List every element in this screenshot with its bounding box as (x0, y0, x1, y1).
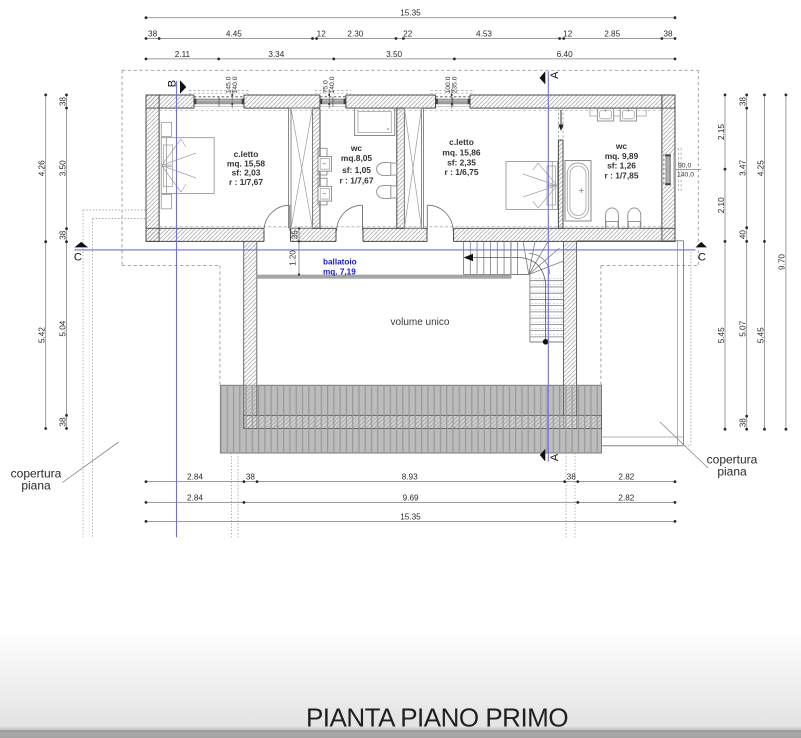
svg-text:PIANTA PIANO PRIMO: PIANTA PIANO PRIMO (306, 703, 568, 733)
svg-text:sf: 1,05: sf: 1,05 (342, 165, 371, 175)
svg-text:35: 35 (290, 230, 299, 239)
svg-text:2.10: 2.10 (717, 197, 726, 213)
svg-text:C: C (698, 252, 706, 264)
svg-text:140.0: 140.0 (232, 76, 239, 93)
svg-text:r : 1/6,75: r : 1/6,75 (445, 167, 479, 177)
svg-text:mq.8,05: mq.8,05 (341, 153, 373, 163)
svg-text:c.letto: c.letto (234, 149, 259, 159)
svg-text:90,0: 90,0 (678, 162, 691, 169)
svg-text:2.84: 2.84 (187, 493, 203, 502)
svg-text:38: 38 (58, 417, 67, 427)
svg-text:5.45: 5.45 (756, 327, 765, 343)
svg-text:r : 1/7,67: r : 1/7,67 (229, 177, 263, 187)
svg-text:2.84: 2.84 (187, 473, 203, 482)
svg-text:140.0: 140.0 (329, 76, 336, 93)
svg-text:5.07: 5.07 (739, 320, 748, 336)
svg-text:38: 38 (58, 97, 67, 107)
svg-text:sf: 1,26: sf: 1,26 (607, 161, 636, 171)
svg-text:c.letto: c.letto (449, 137, 474, 147)
svg-text:2.30: 2.30 (347, 30, 363, 39)
svg-text:3.34: 3.34 (268, 50, 284, 59)
svg-text:r : 1/7,85: r : 1/7,85 (605, 170, 639, 180)
svg-text:piana: piana (717, 465, 747, 479)
svg-text:5.42: 5.42 (38, 327, 47, 343)
svg-text:38: 38 (246, 473, 256, 482)
svg-text:235.0: 235.0 (451, 76, 458, 93)
svg-text:mq. 15,86: mq. 15,86 (442, 148, 481, 158)
svg-text:ballatoio: ballatoio (323, 257, 357, 266)
svg-text:38: 38 (148, 30, 158, 39)
svg-text:r : 1/7,67: r : 1/7,67 (340, 176, 374, 186)
svg-text:C: C (74, 252, 82, 264)
svg-text:15.35: 15.35 (400, 9, 421, 18)
svg-text:8.93: 8.93 (402, 473, 418, 482)
svg-text:4.25: 4.25 (756, 160, 765, 176)
svg-text:9.70: 9.70 (778, 254, 787, 270)
svg-text:2.15: 2.15 (717, 124, 726, 140)
svg-text:40: 40 (739, 230, 748, 240)
svg-text:5.04: 5.04 (58, 320, 67, 336)
svg-text:3.50: 3.50 (58, 160, 67, 176)
svg-text:piana: piana (21, 479, 51, 493)
svg-text:volume unico: volume unico (391, 317, 450, 328)
svg-text:2.82: 2.82 (618, 473, 634, 482)
svg-text:2.85: 2.85 (604, 30, 620, 39)
svg-text:38: 38 (567, 473, 577, 482)
svg-text:12: 12 (317, 30, 327, 39)
svg-text:38: 38 (663, 30, 673, 39)
svg-text:22: 22 (403, 30, 413, 39)
svg-text:4.26: 4.26 (38, 160, 47, 176)
svg-text:4.53: 4.53 (476, 30, 492, 39)
svg-text:38: 38 (58, 230, 67, 240)
svg-text:140,0: 140,0 (677, 171, 694, 178)
svg-text:A: A (549, 71, 561, 79)
svg-text:38: 38 (739, 418, 748, 428)
svg-text:9.69: 9.69 (403, 493, 419, 502)
svg-text:mq. 7,19: mq. 7,19 (323, 267, 356, 276)
svg-text:4.45: 4.45 (226, 30, 242, 39)
svg-text:6.40: 6.40 (557, 50, 573, 59)
svg-text:1.20: 1.20 (289, 250, 298, 266)
svg-text:5.45: 5.45 (717, 327, 726, 343)
svg-text:sf: 2,35: sf: 2,35 (447, 157, 476, 167)
svg-text:wc: wc (615, 141, 628, 151)
svg-text:A: A (549, 453, 561, 461)
svg-text:12: 12 (563, 30, 573, 39)
svg-text:mq. 9,89: mq. 9,89 (605, 151, 639, 161)
svg-text:38: 38 (739, 97, 748, 107)
svg-text:2.82: 2.82 (618, 493, 634, 502)
svg-text:3.50: 3.50 (386, 50, 402, 59)
svg-text:wc: wc (350, 143, 363, 153)
svg-text:15.35: 15.35 (400, 512, 421, 521)
svg-text:3.47: 3.47 (739, 159, 748, 175)
svg-text:B: B (166, 80, 178, 87)
svg-text:2.11: 2.11 (175, 50, 191, 59)
